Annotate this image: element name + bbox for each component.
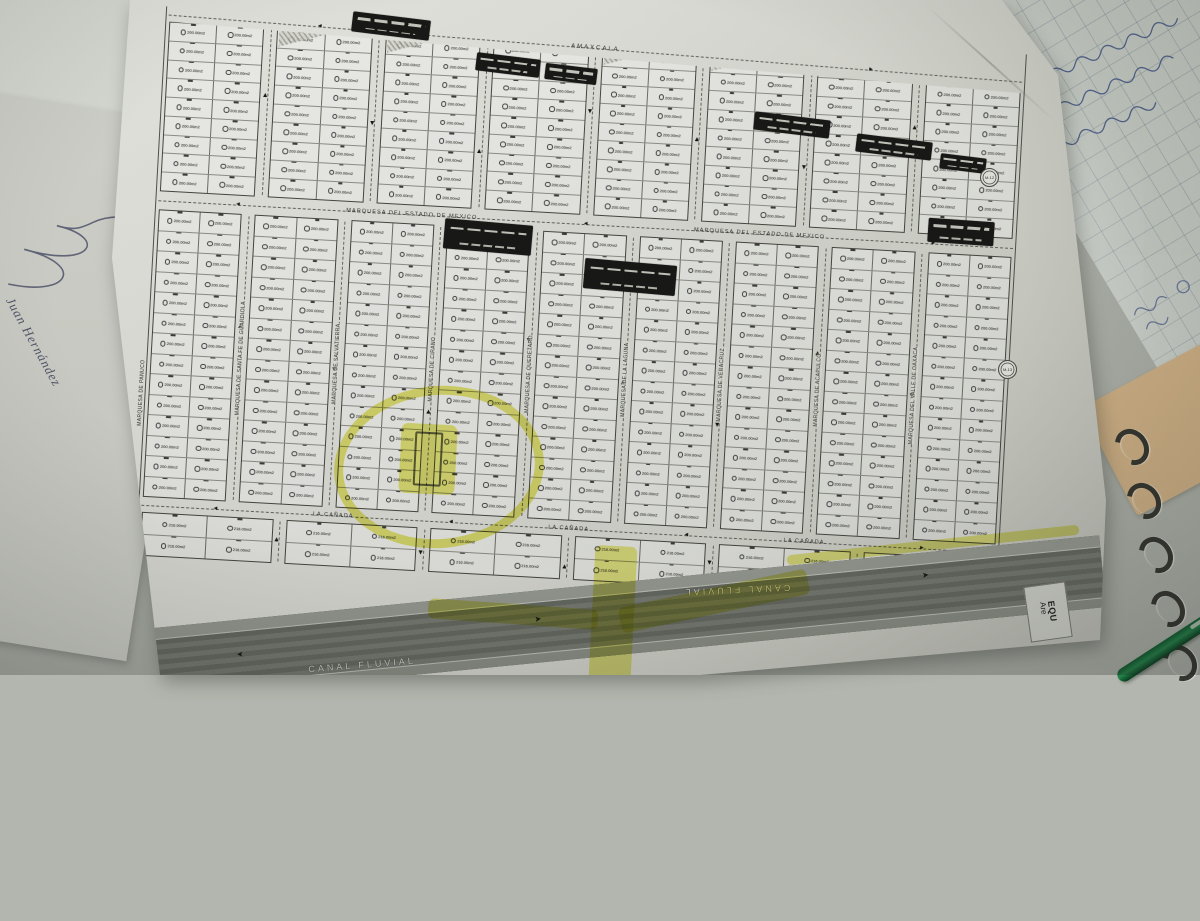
- lot-cell: 200.00m2: [423, 187, 471, 207]
- lot-cell: 200.00m2: [542, 252, 583, 274]
- lot-cell: 200.00m2: [960, 399, 1002, 421]
- lot-cell: 200.00m2: [255, 216, 296, 238]
- lot-cell: 200.00m2: [247, 359, 288, 381]
- lot-cell: 200.00m2: [826, 350, 867, 372]
- street-name: MARQUESA DEL ESTADO DE MEXICO: [694, 227, 825, 240]
- lot-cell: 200.00m2: [857, 193, 905, 213]
- lot-cell: 200.00m2: [213, 63, 261, 83]
- lot-cell: 200.00m2: [956, 481, 998, 503]
- lot-cell: 200.00m2: [379, 148, 426, 168]
- lot-cell: 200.00m2: [240, 482, 281, 504]
- lot-cell: 200.00m2: [345, 323, 386, 345]
- lot-cell: 200.00m2: [284, 423, 326, 445]
- lot-cell: 200.00m2: [824, 391, 865, 413]
- lot-cell: 200.00m2: [280, 484, 322, 506]
- lot-cell: 200.00m2: [270, 160, 317, 180]
- lot-cell: 200.00m2: [491, 97, 538, 117]
- lot-cell: 200.00m2: [424, 169, 472, 189]
- city-block: 200.00m2200.00m2200.00m2200.00m2200.00m2…: [239, 215, 338, 507]
- lot-cell: 200.00m2: [210, 119, 258, 139]
- lot-cell: 200.00m2: [488, 153, 535, 173]
- lot-cell: 200.00m2: [919, 196, 966, 216]
- lot-cell: 200.00m2: [184, 479, 226, 501]
- lot-cell: 200.00m2: [830, 289, 871, 311]
- lot-cell: 200.00m2: [957, 460, 999, 482]
- lot-cell: 200.00m2: [872, 250, 914, 272]
- lot-cell: 200.00m2: [489, 135, 536, 155]
- lot-cell: 200.00m2: [864, 80, 912, 100]
- street-arrow-icon: ▼: [706, 560, 713, 567]
- lot-cell: 200.00m2: [529, 498, 570, 520]
- lot-cell: 200.00m2: [680, 239, 722, 261]
- lot-cell: 200.00m2: [827, 330, 868, 352]
- lot-cell: 200.00m2: [536, 118, 584, 138]
- lot-cell: 200.00m2: [640, 237, 681, 259]
- lot-cell: 200.00m2: [599, 104, 646, 124]
- lot-cell: 200.00m2: [388, 285, 430, 307]
- lot-cell: 200.00m2: [189, 397, 231, 419]
- lot-cell: 200.00m2: [152, 333, 193, 355]
- lot-cell: 200.00m2: [598, 122, 645, 142]
- lot-cell: 200.00m2: [248, 339, 289, 361]
- lot-cell: 200.00m2: [669, 424, 711, 446]
- lot-cell: 216.00m2: [493, 554, 559, 578]
- lot-cell: 200.00m2: [534, 156, 582, 176]
- lot-cell: 200.00m2: [323, 51, 371, 71]
- lot-cell: 200.00m2: [384, 73, 431, 93]
- street-arrow-icon: ▼: [800, 164, 807, 171]
- street-arrow-icon: ▼: [586, 108, 593, 115]
- lot-cell: 200.00m2: [971, 106, 1019, 126]
- lot-cell: 200.00m2: [289, 320, 331, 342]
- street-arrow-icon: ▲: [273, 536, 280, 543]
- lot-cell: 200.00m2: [274, 86, 321, 106]
- lot-cell: 200.00m2: [706, 128, 753, 148]
- lot-cell: 200.00m2: [320, 88, 368, 108]
- lot-cell: 200.00m2: [537, 355, 578, 377]
- lot-cell: 200.00m2: [168, 41, 215, 61]
- lot-cell: 200.00m2: [754, 94, 802, 114]
- lot-cell: 200.00m2: [538, 81, 586, 101]
- lot-cell: 200.00m2: [966, 297, 1008, 319]
- lot-cell: 200.00m2: [576, 377, 618, 399]
- lot-cell: 200.00m2: [186, 438, 228, 460]
- lot-cell: 200.00m2: [768, 388, 810, 410]
- lot-cell: 200.00m2: [378, 166, 425, 186]
- lot-cell: 200.00m2: [147, 415, 188, 437]
- lot-cell: 200.00m2: [640, 200, 688, 220]
- lot-cell: 200.00m2: [193, 315, 235, 337]
- street-name: LA CAÑADA: [548, 524, 589, 532]
- lot-cell: 200.00m2: [735, 263, 776, 285]
- lot-cell: 200.00m2: [673, 362, 715, 384]
- coordinate-tick: + 368.800: [56, 157, 99, 165]
- lot-cell: 200.00m2: [169, 23, 216, 43]
- lot-cell: 200.00m2: [249, 318, 290, 340]
- lot-cell: 200.00m2: [539, 314, 580, 336]
- lot-cell: 200.00m2: [243, 420, 284, 442]
- lot-cell: 200.00m2: [767, 409, 809, 431]
- lot-cell: 200.00m2: [192, 335, 234, 357]
- lot-cell: 200.00m2: [867, 332, 909, 354]
- street-name: LA CAÑADA: [313, 511, 354, 519]
- lot-cell: 200.00m2: [343, 364, 384, 386]
- lot-cell: 200.00m2: [732, 304, 773, 326]
- lot-cell: 200.00m2: [730, 345, 771, 367]
- lot-cell: 216.00m2: [206, 516, 272, 540]
- lot-cell: 200.00m2: [702, 203, 749, 223]
- lot-cell: 200.00m2: [625, 503, 666, 525]
- lot-cell: 216.00m2: [205, 538, 271, 562]
- street-name: AMAXCALA: [571, 43, 620, 53]
- lot-cell: 200.00m2: [389, 264, 431, 286]
- lot-cell: 200.00m2: [922, 356, 963, 378]
- lot-cell: 200.00m2: [282, 443, 324, 465]
- lot-cell: 200.00m2: [541, 273, 582, 295]
- lot-cell: 200.00m2: [966, 199, 1014, 219]
- lot-cell: 200.00m2: [537, 100, 585, 120]
- street-arrow-icon: ◄: [212, 505, 218, 511]
- lot-cell: 200.00m2: [869, 312, 911, 334]
- lot-cell: 200.00m2: [577, 357, 619, 379]
- lot-cell: 200.00m2: [316, 163, 364, 183]
- lot-cell: 200.00m2: [955, 501, 997, 523]
- lot-cell: 200.00m2: [253, 257, 294, 279]
- lot-cell: 200.00m2: [748, 206, 796, 226]
- lot-cell: 200.00m2: [776, 245, 818, 267]
- lot-cell: 200.00m2: [242, 441, 283, 463]
- city-block: 200.00m2200.00m2200.00m2200.00m2200.00m2…: [376, 34, 481, 209]
- lot-cell: 200.00m2: [573, 418, 615, 440]
- lot-cell: 200.00m2: [145, 456, 186, 478]
- lot-cell: 200.00m2: [958, 440, 1000, 462]
- lot-cell: 200.00m2: [246, 379, 287, 401]
- lot-cell: 200.00m2: [385, 326, 427, 348]
- city-block: 200.00m2200.00m2200.00m2200.00m2200.00m2…: [701, 52, 806, 227]
- city-block: 200.00m2200.00m2200.00m2200.00m2200.00m2…: [912, 252, 1011, 544]
- lot-cell: 200.00m2: [866, 353, 908, 375]
- lot-cell: 200.00m2: [167, 60, 214, 80]
- lot-cell: 200.00m2: [383, 367, 425, 389]
- lot-cell: 200.00m2: [927, 274, 968, 296]
- lot-cell: 200.00m2: [214, 44, 262, 64]
- lot-cell: 200.00m2: [636, 299, 677, 321]
- lot-cell: 200.00m2: [859, 475, 901, 497]
- lot-cell: 200.00m2: [709, 73, 756, 93]
- lot-cell: 200.00m2: [675, 321, 717, 343]
- lot-cell: 200.00m2: [645, 106, 693, 126]
- lot-cell: 200.00m2: [164, 116, 211, 136]
- lot-cell: 200.00m2: [821, 453, 862, 475]
- lot-cell: 200.00m2: [829, 309, 870, 331]
- lot-cell: 200.00m2: [191, 356, 233, 378]
- city-block: 200.00m2200.00m2200.00m2200.00m2200.00m2…: [160, 22, 265, 197]
- lot-cell: 200.00m2: [736, 243, 777, 265]
- lot-cell: 200.00m2: [429, 94, 477, 114]
- lot-cell: 200.00m2: [146, 435, 187, 457]
- lot-cell: 200.00m2: [919, 417, 960, 439]
- lot-cell: 200.00m2: [818, 494, 859, 516]
- lot-cell: 200.00m2: [630, 401, 671, 423]
- lot-cell: 216.00m2: [286, 521, 351, 545]
- lot-cell: 200.00m2: [144, 476, 185, 498]
- lot-cell: 200.00m2: [532, 193, 580, 213]
- lot-cell: 200.00m2: [533, 416, 574, 438]
- lot-cell: 200.00m2: [703, 184, 750, 204]
- lot-cell: 200.00m2: [764, 450, 806, 472]
- equipment-area-box: EQU Are: [1023, 581, 1072, 642]
- lot-cell: 200.00m2: [295, 218, 337, 240]
- lot-cell: 200.00m2: [918, 438, 959, 460]
- lot-cell: 216.00m2: [141, 534, 206, 558]
- lot-cell: 200.00m2: [190, 376, 232, 398]
- lot-cell: 200.00m2: [281, 464, 323, 486]
- block-band: 200.00m2200.00m2200.00m2200.00m2200.00m2…: [140, 209, 1015, 545]
- subdivision-plan: ◄AMAXCALA►200.00m2200.00m2200.00m2200.00…: [135, 6, 1027, 609]
- lot-cell: 200.00m2: [707, 110, 754, 130]
- lot-cell: 200.00m2: [750, 168, 798, 188]
- street-name-vertical: MARQUESA DE SALVATIERRA: [331, 323, 341, 404]
- lot-cell: 200.00m2: [721, 509, 762, 531]
- lot-cell: 200.00m2: [430, 76, 478, 96]
- lot-cell: 200.00m2: [810, 209, 857, 229]
- lot-cell: 200.00m2: [428, 113, 476, 133]
- lot-cell: 200.00m2: [199, 213, 241, 235]
- lot-cell: 200.00m2: [292, 279, 334, 301]
- lot-cell: 200.00m2: [286, 382, 328, 404]
- lot-cell: 200.00m2: [704, 166, 751, 186]
- lot-cell: 200.00m2: [856, 212, 904, 232]
- lot-cell: 200.00m2: [162, 154, 209, 174]
- lot-cell: 200.00m2: [859, 155, 907, 175]
- lot-cell: 200.00m2: [811, 190, 858, 210]
- lot-cell: 200.00m2: [924, 122, 971, 142]
- block-marker: M-13: [998, 360, 1017, 379]
- lot-cell: 200.00m2: [391, 223, 433, 245]
- plan-sheet: ◄AMAXCALA►200.00m2200.00m2200.00m2200.00…: [0, 0, 1200, 675]
- lot-cell: 200.00m2: [920, 178, 967, 198]
- lot-cell: 200.00m2: [774, 286, 816, 308]
- lot-cell: 200.00m2: [427, 132, 475, 152]
- lot-cell: 200.00m2: [627, 462, 668, 484]
- lot-cell: 200.00m2: [644, 125, 692, 145]
- lot-cell: 200.00m2: [812, 171, 859, 191]
- equipment-area-label: EQU Are: [1038, 600, 1059, 623]
- lot-cell: 200.00m2: [862, 434, 904, 456]
- desk-photo: Juan Hernández ◄AMAXCALA►200.00m2200.00m…: [0, 0, 1200, 675]
- lot-cell: 200.00m2: [195, 274, 237, 296]
- coordinate-tick: + 368.600: [40, 351, 83, 359]
- lot-cell: 200.00m2: [708, 91, 755, 111]
- lot-cell: 200.00m2: [642, 162, 690, 182]
- street-name-vertical: MARQUESA DE ACAPULCO: [813, 354, 823, 428]
- lot-cell: 200.00m2: [212, 81, 260, 101]
- lot-cell: 200.00m2: [751, 150, 799, 170]
- lot-cell: 200.00m2: [487, 172, 534, 192]
- lot-cell: 200.00m2: [194, 294, 236, 316]
- lot-cell: 200.00m2: [348, 282, 389, 304]
- lot-cell: 200.00m2: [727, 406, 768, 428]
- lot-cell: 200.00m2: [865, 373, 907, 395]
- lot-cell: 200.00m2: [390, 244, 432, 266]
- lot-cell: 200.00m2: [163, 135, 210, 155]
- street-arrow-icon: ►: [868, 66, 874, 72]
- city-block: 200.00m2200.00m2200.00m2200.00m2200.00m2…: [268, 28, 373, 203]
- lot-cell: 200.00m2: [492, 78, 539, 98]
- lot-cell: 200.00m2: [647, 69, 695, 89]
- lot-cell: 200.00m2: [967, 276, 1009, 298]
- lot-cell: 200.00m2: [288, 341, 330, 363]
- lot-cell: 200.00m2: [346, 303, 387, 325]
- street-arrow-icon: ▲: [693, 136, 700, 143]
- lot-cell: 200.00m2: [486, 191, 533, 211]
- lot-cell: 200.00m2: [628, 442, 669, 464]
- lot-cell: 200.00m2: [595, 178, 642, 198]
- lot-cell: 200.00m2: [771, 327, 813, 349]
- lot-cell: 200.00m2: [158, 231, 199, 253]
- lot-cell: 200.00m2: [445, 267, 486, 289]
- lot-cell: 200.00m2: [533, 175, 581, 195]
- block-marker: M-12: [980, 168, 999, 187]
- lot-cell: 200.00m2: [817, 78, 864, 98]
- lot-cell: 200.00m2: [166, 79, 213, 99]
- lot-cell: 200.00m2: [387, 305, 429, 327]
- lot-cell: 216.00m2: [142, 513, 207, 537]
- lot-cell: 200.00m2: [775, 265, 817, 287]
- lot-cell: 200.00m2: [276, 48, 323, 68]
- lot-cell: 200.00m2: [490, 116, 537, 136]
- lot-cell: 200.00m2: [480, 352, 522, 374]
- lot-cell: 200.00m2: [925, 103, 972, 123]
- lot-cell: 200.00m2: [671, 403, 713, 425]
- lot-cell: 200.00m2: [728, 386, 769, 408]
- lot-cell: 200.00m2: [817, 514, 858, 536]
- lot-cell: 200.00m2: [672, 383, 714, 405]
- lot-cell: 200.00m2: [443, 308, 484, 330]
- lot-cell: 200.00m2: [579, 316, 621, 338]
- lot-cell: 200.00m2: [185, 458, 227, 480]
- lot-cell: 200.00m2: [584, 234, 626, 256]
- lot-cell: 200.00m2: [596, 160, 643, 180]
- city-block: 200.00m2200.00m2200.00m2200.00m2200.00m2…: [816, 247, 915, 539]
- lot-cell: 200.00m2: [831, 268, 872, 290]
- lot-cell: 200.00m2: [666, 485, 708, 507]
- lot-cell: 200.00m2: [832, 248, 873, 270]
- lot-cell: 200.00m2: [928, 253, 969, 275]
- lot-cell: 200.00m2: [825, 371, 866, 393]
- street-arrow-icon: ▲: [262, 91, 269, 98]
- lot-cell: 200.00m2: [762, 490, 804, 512]
- lot-cell: 200.00m2: [209, 138, 257, 158]
- lot-cell: 200.00m2: [705, 147, 752, 167]
- lot-cell: 200.00m2: [641, 181, 689, 201]
- city-block: 216.00m2216.00m2216.00m2216.00m2: [139, 512, 273, 563]
- lot-cell: 200.00m2: [272, 123, 319, 143]
- lot-cell: 200.00m2: [635, 319, 676, 341]
- lot-cell: 200.00m2: [431, 57, 479, 77]
- lot-cell: 200.00m2: [315, 181, 363, 201]
- lot-cell: 200.00m2: [646, 88, 694, 108]
- lot-cell: 200.00m2: [964, 337, 1006, 359]
- lot-cell: 200.00m2: [293, 259, 335, 281]
- lot-cell: 200.00m2: [597, 141, 644, 161]
- lot-cell: 200.00m2: [155, 272, 196, 294]
- lot-cell: 200.00m2: [483, 311, 525, 333]
- street-arrow-icon: ▲: [476, 148, 483, 155]
- lot-cell: 200.00m2: [198, 233, 240, 255]
- lot-cell: 200.00m2: [961, 378, 1003, 400]
- lot-cell: 200.00m2: [665, 506, 707, 528]
- lot-cell: 200.00m2: [151, 354, 192, 376]
- lot-cell: 200.00m2: [574, 398, 616, 420]
- lot-cell: 200.00m2: [269, 179, 316, 199]
- lot-cell: 200.00m2: [858, 496, 900, 518]
- lot-cell: 200.00m2: [871, 271, 913, 293]
- lot-cell: 200.00m2: [924, 335, 965, 357]
- lot-cell: 200.00m2: [207, 175, 255, 195]
- lot-cell: 200.00m2: [594, 197, 641, 217]
- lot-cell: 200.00m2: [823, 412, 864, 434]
- street-arrow-icon: ◄: [583, 221, 589, 227]
- lot-cell: 200.00m2: [380, 129, 427, 149]
- lot-cell: 200.00m2: [350, 242, 391, 264]
- lot-cell: 216.00m2: [719, 545, 784, 569]
- lot-cell: 200.00m2: [251, 277, 292, 299]
- lot-cell: 200.00m2: [479, 372, 521, 394]
- lot-cell: 200.00m2: [534, 396, 575, 418]
- lot-cell: 200.00m2: [968, 256, 1010, 278]
- lot-cell: 200.00m2: [273, 104, 320, 124]
- lot-cell: 200.00m2: [600, 85, 647, 105]
- lot-cell: 200.00m2: [165, 98, 212, 118]
- lot-cell: 200.00m2: [321, 70, 369, 90]
- lot-cell: 200.00m2: [769, 368, 811, 390]
- street-arrow-icon: ◄: [683, 532, 689, 538]
- lot-cell: 200.00m2: [377, 185, 424, 205]
- lot-cell: 200.00m2: [275, 67, 322, 87]
- lot-cell: 200.00m2: [319, 107, 367, 127]
- lot-cell: 200.00m2: [863, 99, 911, 119]
- lot-cell: 200.00m2: [772, 306, 814, 328]
- lot-cell: 200.00m2: [722, 488, 763, 510]
- street-arrow-icon: ◄: [235, 202, 241, 208]
- lot-cell: 200.00m2: [676, 301, 718, 323]
- lot-cell: 200.00m2: [290, 300, 332, 322]
- lot-cell: 200.00m2: [572, 439, 614, 461]
- lot-cell: 200.00m2: [485, 270, 527, 292]
- lot-cell: 200.00m2: [601, 66, 648, 86]
- lot-cell: 200.00m2: [813, 153, 860, 173]
- lot-cell: 200.00m2: [633, 360, 674, 382]
- lot-cell: 200.00m2: [863, 414, 905, 436]
- lot-cell: 200.00m2: [570, 480, 612, 502]
- lot-cell: 216.00m2: [349, 546, 415, 570]
- lot-cell: 200.00m2: [626, 483, 667, 505]
- highlighted-lot: [398, 423, 458, 496]
- street-arrow-icon: ▲: [911, 124, 918, 131]
- city-block: 200.00m2200.00m2200.00m2200.00m2200.00m2…: [143, 209, 242, 501]
- lot-cell: 200.00m2: [819, 473, 860, 495]
- lot-cell: 200.00m2: [926, 294, 967, 316]
- lot-cell: 200.00m2: [241, 461, 282, 483]
- lot-cell: 200.00m2: [766, 429, 808, 451]
- sold-block-banner: [927, 218, 995, 247]
- street-name-vertical: MARQUESA DE LA LAGUNA: [620, 342, 630, 416]
- lot-cell: 200.00m2: [442, 329, 483, 351]
- lot-cell: 200.00m2: [677, 280, 719, 302]
- lot-cell: 200.00m2: [535, 137, 583, 157]
- lot-cell: 200.00m2: [384, 346, 426, 368]
